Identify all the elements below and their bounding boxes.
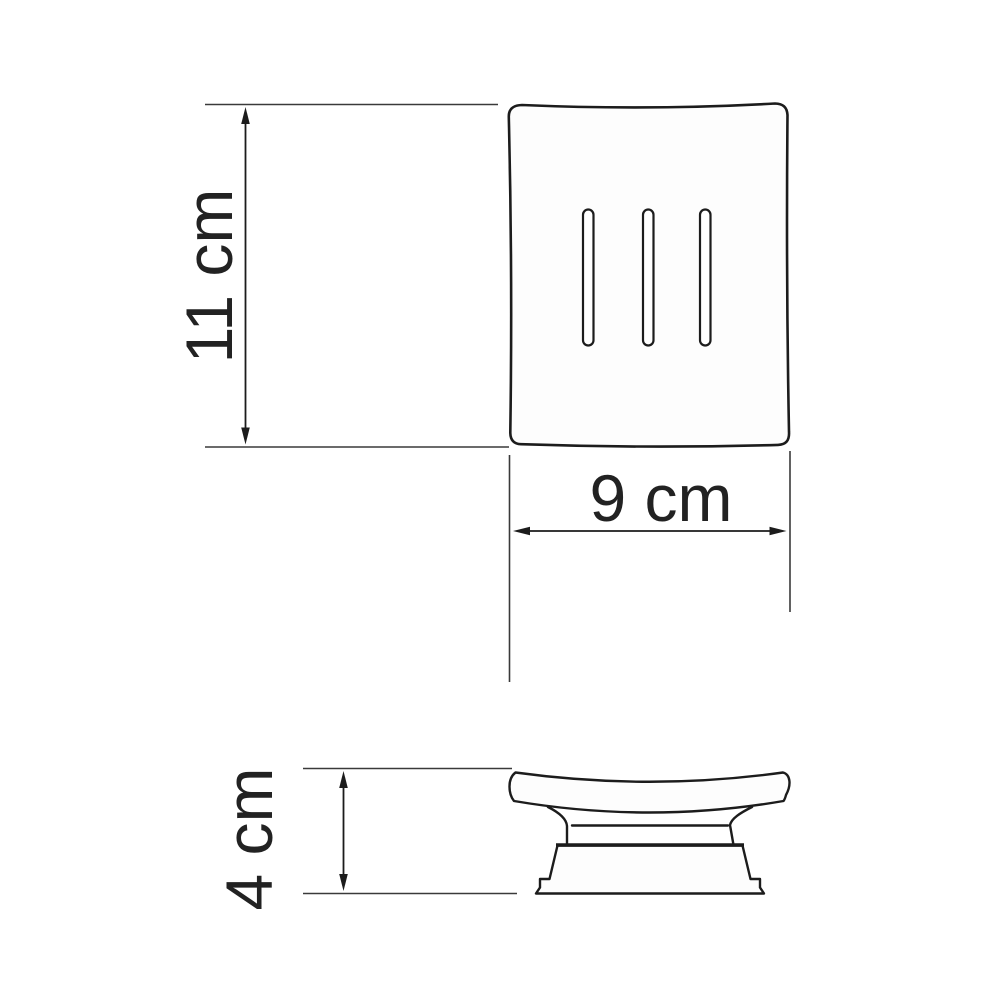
arrow-left-icon <box>513 527 530 536</box>
drain-slot-2 <box>643 210 654 346</box>
height-dimension-label: 11 cm <box>172 189 246 364</box>
arrow-right-icon <box>770 527 787 536</box>
width-dimension-label: 9 cm <box>589 461 732 535</box>
arrow-down-icon <box>241 428 250 445</box>
depth-dimension-label: 4 cm <box>212 767 286 910</box>
soap-dish-profile-outline <box>510 773 790 813</box>
side-view <box>510 773 790 894</box>
drawing-svg: 11 cm 9 cm <box>0 0 1000 1000</box>
arrow-up-icon <box>241 107 250 124</box>
pedestal-base-outline <box>536 846 764 894</box>
arrow-up-icon <box>339 771 348 788</box>
technical-drawing: 11 cm 9 cm <box>0 0 1000 1000</box>
arrow-down-icon <box>339 874 348 891</box>
depth-dimension: 4 cm <box>212 767 517 910</box>
height-dimension: 11 cm <box>172 105 509 448</box>
top-view <box>509 104 789 447</box>
width-dimension: 9 cm <box>510 451 791 682</box>
drain-slot-3 <box>700 210 711 346</box>
pedestal-neck-right-edge <box>730 807 752 845</box>
drain-slot-1 <box>583 210 594 346</box>
pedestal-neck-left-edge <box>548 807 567 845</box>
